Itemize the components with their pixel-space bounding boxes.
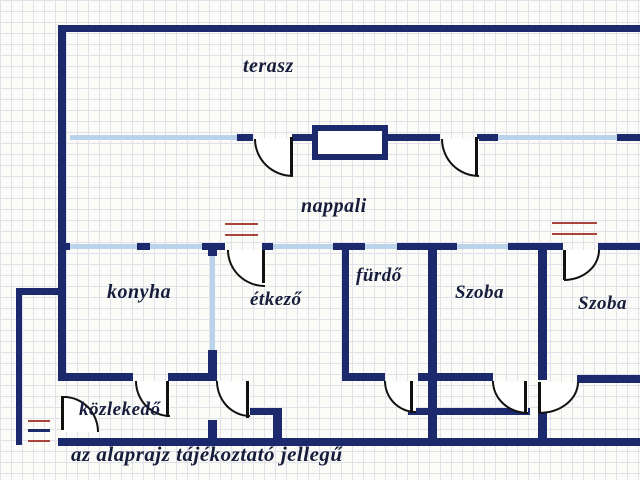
- door-leaf: [563, 250, 566, 280]
- wall-annex-top: [16, 288, 62, 295]
- wall-mid-seg: [137, 243, 150, 250]
- door-leaf: [61, 396, 64, 430]
- radiator-icon: [28, 440, 50, 442]
- divider-konyha-etkezo-stub: [208, 420, 217, 438]
- wall-mid-seg: [58, 243, 70, 250]
- wall-annex-left: [16, 288, 22, 445]
- radiator-icon: [28, 420, 50, 422]
- door-leaf: [290, 137, 293, 175]
- door-leaf: [538, 382, 541, 413]
- room-label-konyha: konyha: [107, 281, 171, 304]
- wall-konyha-bottom2: [168, 373, 217, 381]
- divider-konyha-etkezo-top: [208, 243, 217, 256]
- door-leaf: [410, 381, 413, 413]
- door-arc-icon: [441, 139, 479, 177]
- wall-mid-seg: [397, 243, 457, 250]
- radiator-icon: [552, 233, 597, 235]
- wall-szoba2-lower: [577, 375, 640, 383]
- door-arc-icon: [254, 139, 293, 177]
- door-arc-icon: [227, 250, 265, 287]
- wall-left: [58, 25, 66, 381]
- door-leaf: [166, 381, 169, 417]
- window-terasz: [70, 135, 237, 140]
- divider-konyha-etkezo-glass: [210, 256, 215, 350]
- window-bay-symbol: [312, 125, 388, 160]
- wall-top: [58, 25, 640, 32]
- door-arc-icon: [539, 382, 579, 414]
- divider-szoba-szoba-top: [538, 243, 547, 380]
- wall-furdo-bottom: [348, 373, 385, 381]
- radiator-icon: [225, 234, 258, 236]
- window-konyha: [70, 244, 137, 249]
- floor-plan: terasz nappali konyha étkező fürdő Szoba…: [0, 0, 640, 480]
- window-furdo: [365, 244, 397, 249]
- wall-terasz-seg: [617, 134, 640, 141]
- window-terasz-right: [498, 135, 617, 140]
- wall-konyha-bottom: [58, 373, 133, 381]
- wall-terasz-seg: [292, 134, 312, 141]
- radiator-icon: [28, 429, 50, 432]
- wall-terasz-seg: [388, 134, 440, 141]
- window-etkezo: [273, 244, 333, 249]
- wall-corridor-north: [418, 373, 493, 381]
- disclaimer-text: az alaprajz tájékoztató jellegű: [71, 442, 343, 467]
- divider-szoba-szoba-bottom: [538, 412, 547, 446]
- window-konyha2: [150, 244, 202, 249]
- wall-etkezo-niche-side: [273, 408, 282, 438]
- room-label-szoba2: Szoba: [578, 293, 627, 315]
- divider-furdo-szoba: [428, 243, 437, 446]
- door-arc-icon: [564, 250, 600, 281]
- wall-terasz-seg: [237, 134, 253, 141]
- wall-terasz-seg: [477, 134, 498, 141]
- room-label-furdo: fürdő: [356, 265, 402, 287]
- room-label-szoba1: Szoba: [455, 282, 504, 304]
- radiator-icon: [225, 223, 258, 225]
- door-arc-icon: [216, 381, 250, 417]
- wall-mid-seg: [333, 243, 365, 250]
- room-label-nappali: nappali: [301, 195, 367, 218]
- window-szoba1: [457, 244, 508, 249]
- door-leaf: [246, 381, 249, 418]
- divider-etkezo-furdo: [342, 243, 349, 381]
- room-label-kozlekedo: közlekedő: [79, 399, 161, 421]
- room-label-etkezo: étkező: [250, 289, 302, 311]
- door-leaf: [262, 250, 265, 283]
- radiator-icon: [552, 222, 597, 224]
- room-label-terasz: terasz: [243, 55, 294, 78]
- wall-mid-seg: [262, 243, 273, 250]
- wall-mid-seg: [598, 243, 640, 250]
- wall-mid-seg: [508, 243, 563, 250]
- door-leaf: [475, 137, 478, 175]
- door-leaf: [524, 381, 527, 413]
